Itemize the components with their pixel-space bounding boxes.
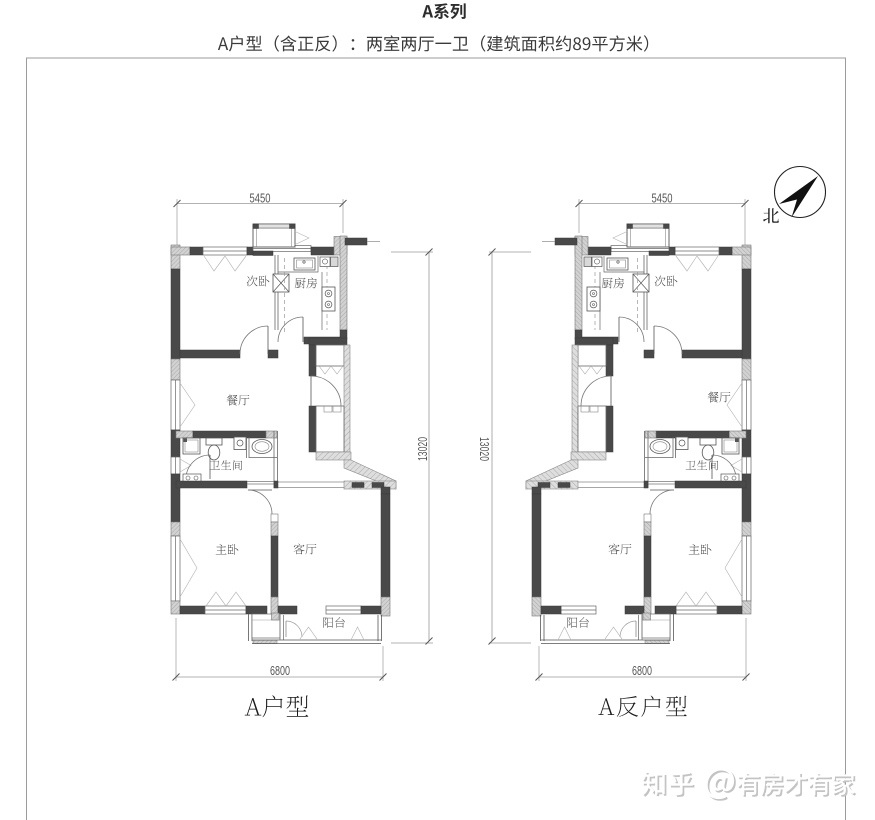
svg-text:6800: 6800	[270, 663, 290, 678]
svg-text:13020: 13020	[477, 437, 492, 461]
svg-text:13020: 13020	[415, 437, 430, 461]
svg-text:5450: 5450	[652, 191, 673, 206]
svg-text:5450: 5450	[250, 191, 271, 206]
svg-text:6800: 6800	[632, 663, 652, 678]
